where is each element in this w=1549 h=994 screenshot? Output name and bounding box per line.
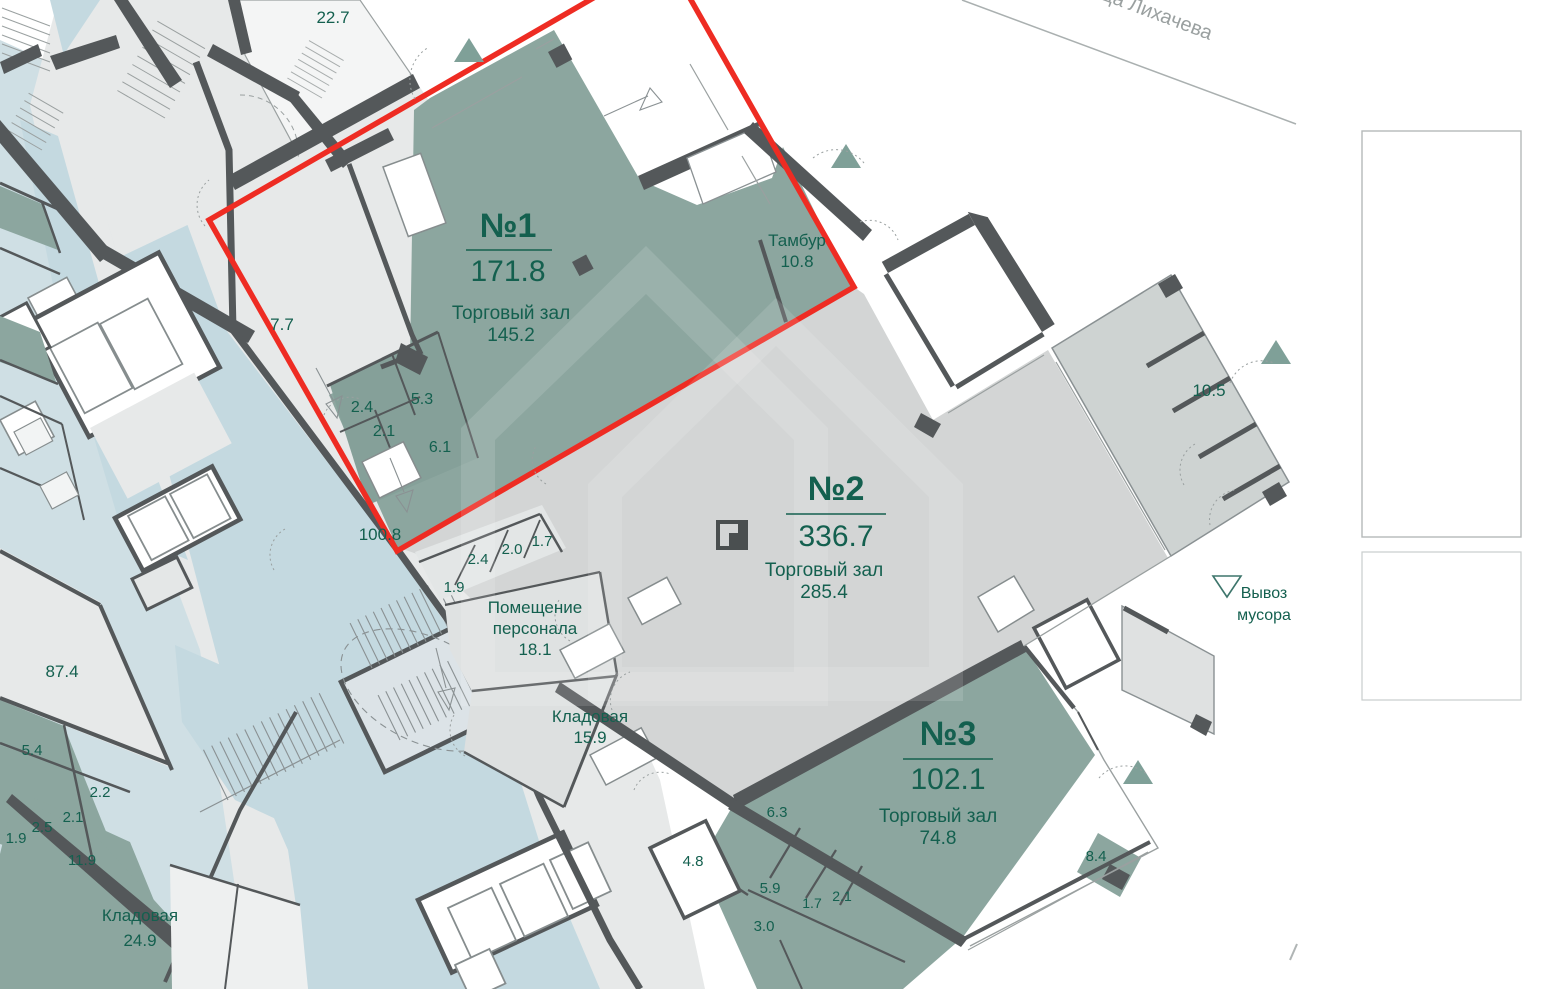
svg-text:5.4: 5.4	[22, 742, 43, 759]
svg-text:5.3: 5.3	[411, 391, 433, 408]
svg-text:8.4: 8.4	[1086, 848, 1107, 865]
svg-text:№3: №3	[920, 715, 977, 753]
svg-text:336.7: 336.7	[798, 520, 873, 553]
svg-text:87.4: 87.4	[45, 662, 78, 681]
svg-text:Торговый зал: Торговый зал	[879, 806, 997, 827]
svg-text:6.3: 6.3	[767, 804, 788, 821]
svg-text:Торговый зал: Торговый зал	[452, 303, 570, 324]
svg-text:7.7: 7.7	[270, 315, 294, 334]
svg-text:100.8: 100.8	[359, 525, 402, 544]
svg-text:102.1: 102.1	[910, 763, 985, 796]
svg-text:Тамбур: Тамбур	[768, 231, 826, 250]
svg-text:2.4: 2.4	[468, 551, 489, 568]
svg-text:15.9: 15.9	[573, 728, 606, 747]
svg-text:2.4: 2.4	[351, 399, 373, 416]
svg-text:285.4: 285.4	[800, 582, 848, 603]
svg-text:2.1: 2.1	[832, 888, 852, 904]
svg-text:Кладовая: Кладовая	[102, 906, 178, 925]
svg-text:1.9: 1.9	[444, 579, 465, 596]
svg-text:персонала: персонала	[493, 619, 578, 638]
svg-text:22.7: 22.7	[316, 8, 349, 27]
svg-text:2.2: 2.2	[90, 784, 111, 801]
svg-text:6.1: 6.1	[429, 439, 451, 456]
svg-text:Вывоз: Вывоз	[1241, 585, 1288, 602]
svg-text:145.2: 145.2	[487, 325, 535, 346]
svg-text:2.1: 2.1	[373, 423, 395, 440]
svg-text:10.5: 10.5	[1192, 381, 1225, 400]
svg-text:74.8: 74.8	[920, 828, 957, 849]
svg-text:10.8: 10.8	[780, 252, 813, 271]
svg-text:1.9: 1.9	[6, 830, 27, 847]
svg-text:мусора: мусора	[1237, 607, 1291, 624]
svg-text:Кладовая: Кладовая	[552, 707, 628, 726]
svg-text:1.7: 1.7	[532, 533, 553, 550]
svg-text:№1: №1	[480, 207, 537, 245]
svg-text:1.7: 1.7	[802, 895, 822, 911]
svg-text:11.9: 11.9	[68, 852, 96, 869]
svg-text:2.0: 2.0	[502, 541, 523, 558]
svg-text:2.5: 2.5	[32, 819, 53, 836]
svg-text:4.8: 4.8	[683, 853, 704, 870]
svg-text:5.9: 5.9	[760, 880, 781, 897]
svg-text:2.1: 2.1	[63, 809, 84, 826]
svg-text:Торговый зал: Торговый зал	[765, 560, 883, 581]
svg-text:24.9: 24.9	[123, 931, 156, 950]
svg-text:Помещение: Помещение	[488, 598, 582, 617]
svg-text:18.1: 18.1	[518, 640, 551, 659]
svg-text:3.0: 3.0	[754, 918, 775, 935]
svg-text:171.8: 171.8	[470, 255, 545, 288]
svg-text:№2: №2	[808, 470, 865, 508]
